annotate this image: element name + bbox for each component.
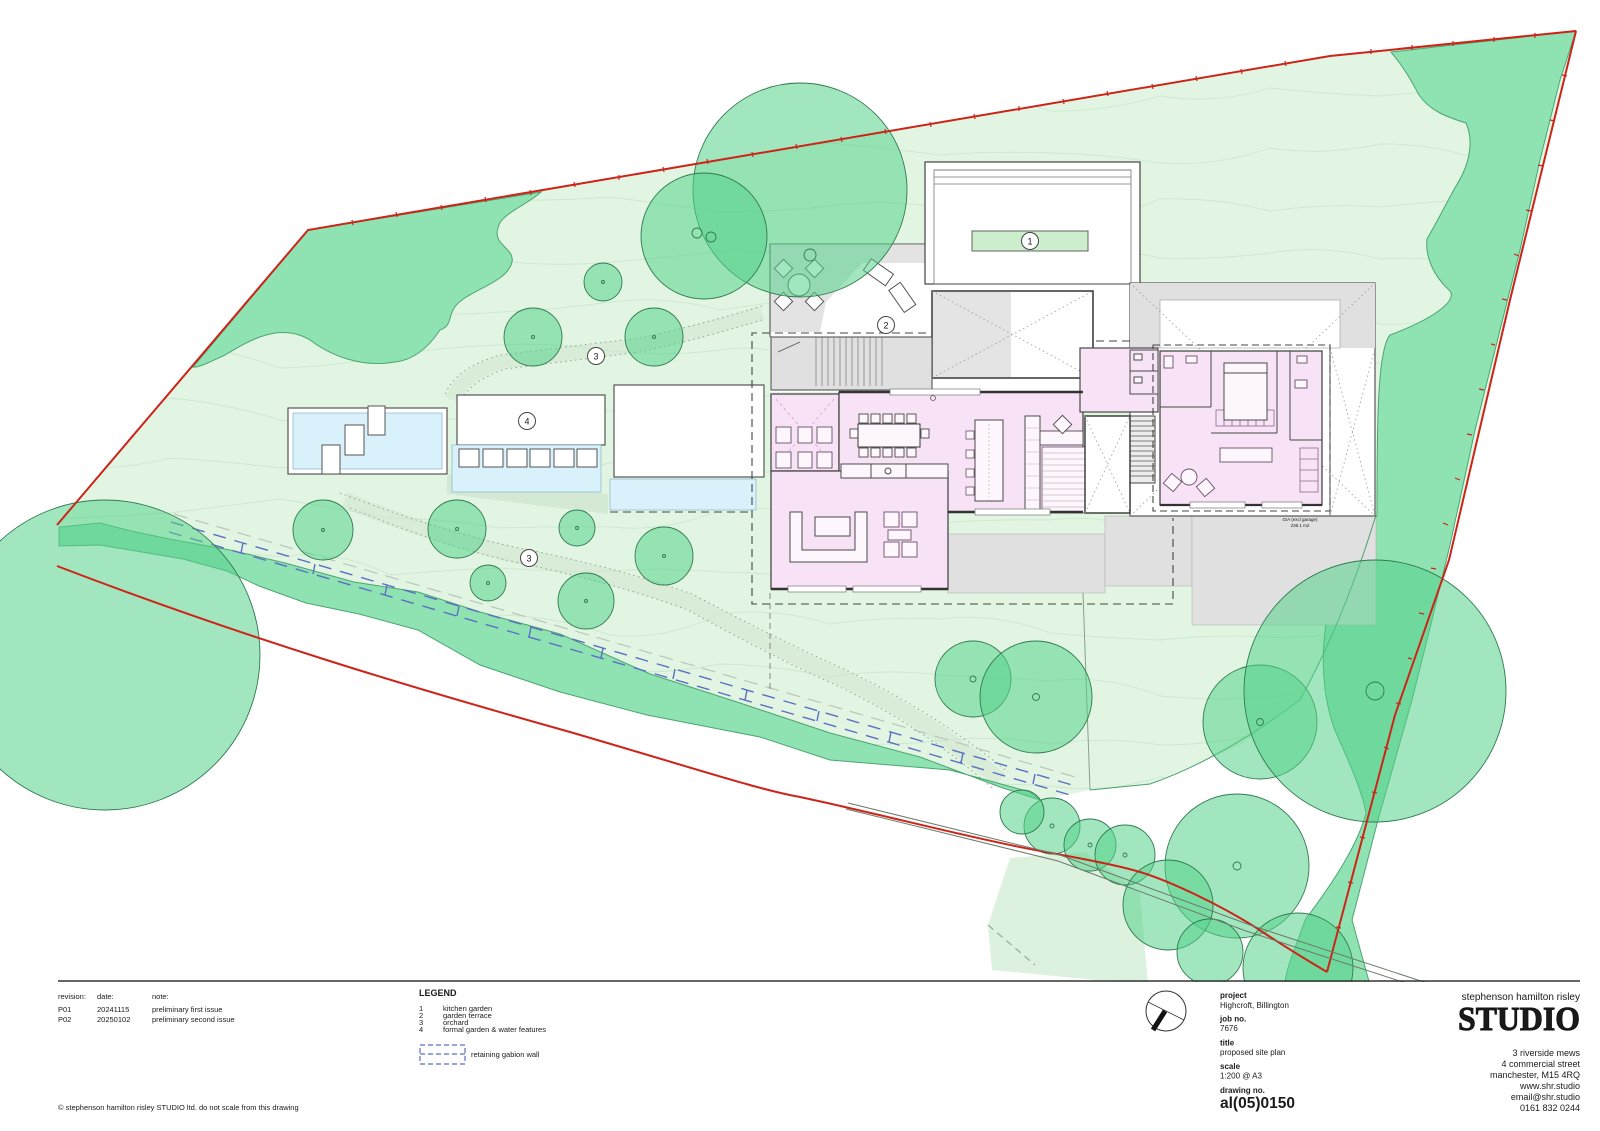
svg-text:P01: P01 — [58, 1005, 71, 1014]
svg-text:20241115: 20241115 — [97, 1005, 129, 1014]
svg-text:retaining gabion wall: retaining gabion wall — [471, 1050, 540, 1059]
svg-text:drawing no.: drawing no. — [1220, 1086, 1265, 1095]
svg-text:preliminary second issue: preliminary second issue — [152, 1015, 235, 1024]
svg-text:note:: note: — [152, 992, 169, 1001]
svg-text:3: 3 — [526, 554, 531, 564]
svg-text:7676: 7676 — [1220, 1024, 1238, 1033]
svg-text:P02: P02 — [58, 1015, 71, 1024]
svg-text:project: project — [1220, 991, 1247, 1000]
svg-text:email@shr.studio: email@shr.studio — [1511, 1092, 1580, 1102]
svg-text:formal garden & water features: formal garden & water features — [443, 1025, 546, 1034]
svg-text:www.shr.studio: www.shr.studio — [1519, 1081, 1580, 1091]
svg-text:Highcroft, Billington: Highcroft, Billington — [1220, 1001, 1289, 1010]
svg-text:0161 832 0244: 0161 832 0244 — [1520, 1103, 1580, 1113]
svg-text:236.1 m2: 236.1 m2 — [1291, 523, 1310, 528]
svg-text:title: title — [1220, 1039, 1235, 1048]
svg-text:preliminary first issue: preliminary first issue — [152, 1005, 222, 1014]
svg-text:4: 4 — [524, 417, 529, 427]
svg-text:© stephenson hamilton risley S: © stephenson hamilton risley STUDIO ltd.… — [58, 1103, 299, 1112]
svg-text:1:200 @ A3: 1:200 @ A3 — [1220, 1072, 1262, 1081]
svg-text:1: 1 — [1027, 237, 1032, 247]
svg-text:manchester, M15 4RQ: manchester, M15 4RQ — [1490, 1070, 1580, 1080]
svg-text:proposed site plan: proposed site plan — [1220, 1048, 1285, 1057]
svg-text:4 commercial street: 4 commercial street — [1501, 1059, 1580, 1069]
svg-text:2: 2 — [883, 321, 888, 331]
svg-text:date:: date: — [97, 992, 114, 1001]
svg-text:STUDIO: STUDIO — [1458, 1001, 1580, 1038]
svg-text:4: 4 — [419, 1025, 423, 1034]
svg-text:LEGEND: LEGEND — [419, 988, 457, 998]
svg-text:job no.: job no. — [1219, 1015, 1246, 1024]
svg-text:20250102: 20250102 — [97, 1015, 130, 1024]
svg-text:scale: scale — [1220, 1062, 1241, 1071]
svg-text:GIA (excl garage): GIA (excl garage) — [1282, 517, 1318, 522]
svg-text:al(05)0150: al(05)0150 — [1220, 1095, 1295, 1112]
svg-text:3 riverside mews: 3 riverside mews — [1512, 1048, 1580, 1058]
svg-text:revision:: revision: — [58, 992, 86, 1001]
svg-text:3: 3 — [593, 352, 598, 362]
